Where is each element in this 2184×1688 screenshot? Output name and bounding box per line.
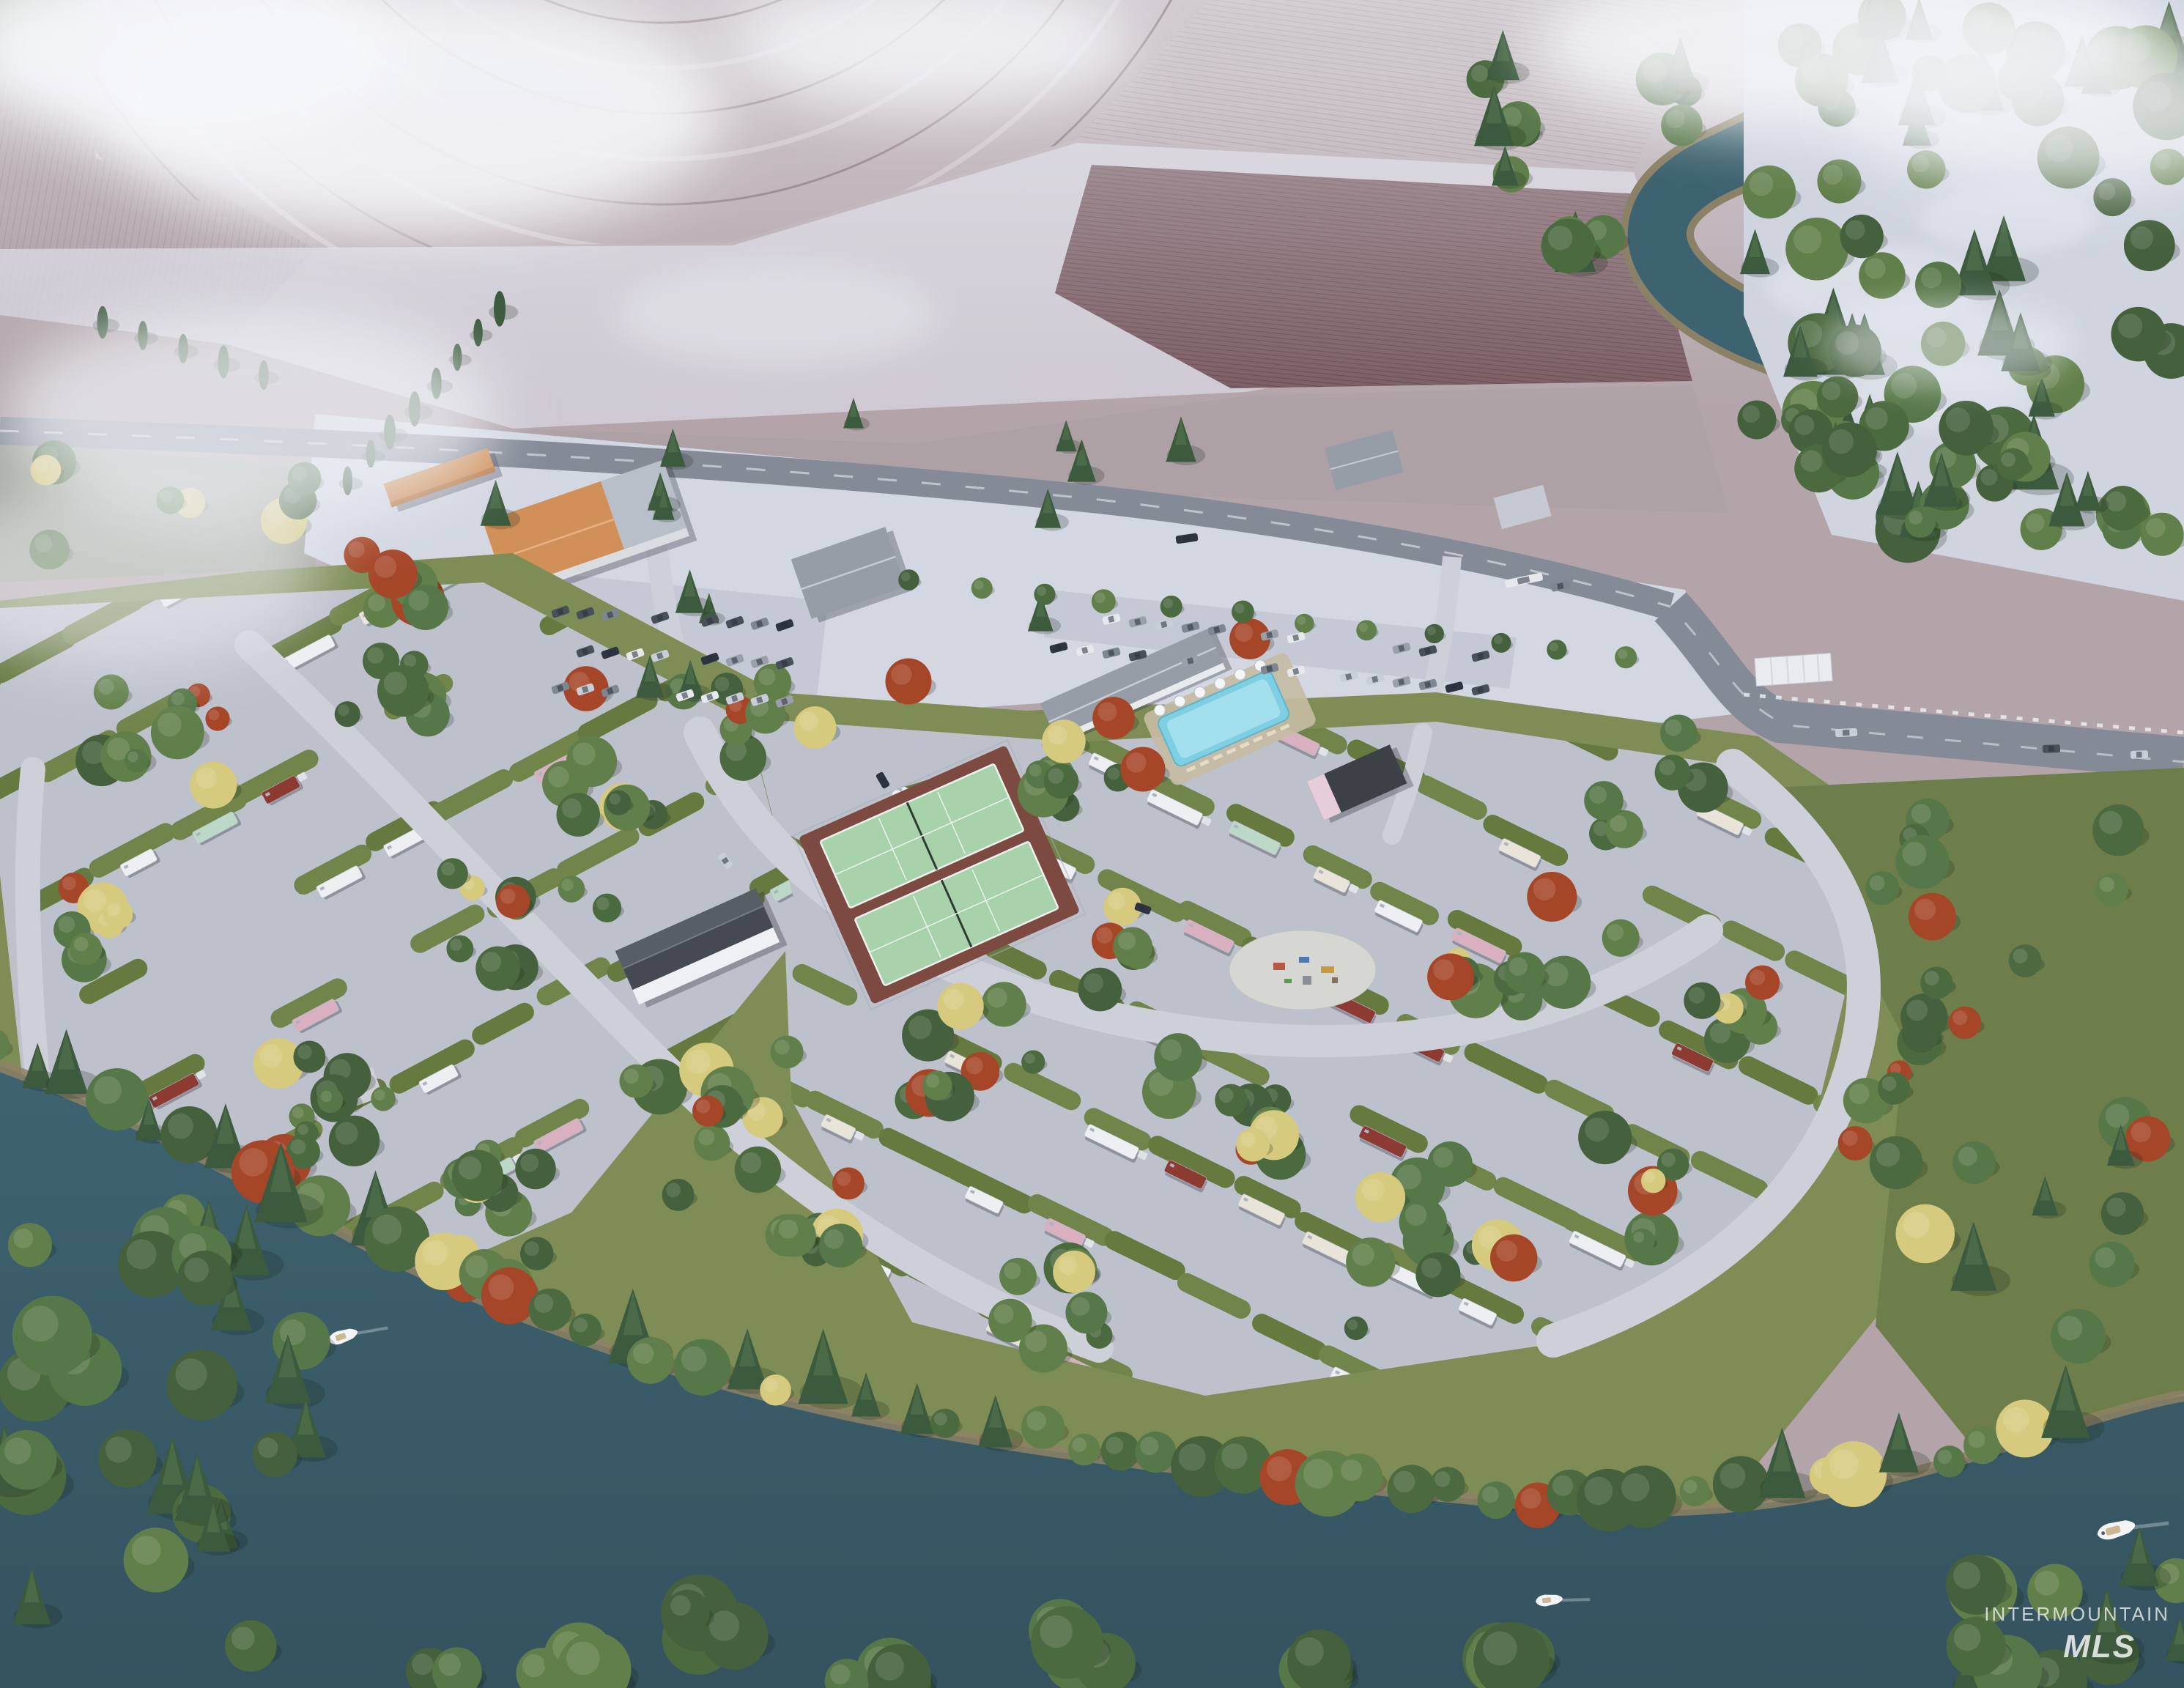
tree-highlight [799,711,818,730]
tree-highlight [1914,899,1936,920]
tree-highlight [175,1358,207,1390]
tree-highlight [774,1040,789,1054]
tree-highlight [384,672,407,695]
tree-highlight [681,1346,707,1371]
car [1835,728,1858,738]
aerial-rendering: INTERMOUNTAIN MLS [0,0,2184,1688]
tree-highlight [666,1182,681,1197]
tree-highlight [1494,635,1503,644]
tree-highlight [489,1274,514,1300]
tree-highlight [321,1091,333,1103]
tree-highlight [2035,1571,2059,1596]
tree-highlight [1071,1297,1090,1316]
tree-highlight [1906,999,1928,1021]
tree-highlight [2058,1316,2083,1341]
tree-highlight [926,1074,939,1087]
tree-highlight [1295,1637,1324,1666]
car-windshield [1557,582,1564,590]
tree-highlight [1267,1456,1292,1481]
tree-highlight [891,664,911,684]
tree-highlight [1352,1244,1374,1266]
tree-highlight [1865,258,1886,279]
tree-highlight [1585,1117,1609,1141]
tree-highlight [338,705,349,717]
tree-highlight [686,1050,710,1074]
tree-highlight [280,1319,306,1345]
tree-highlight [450,939,462,951]
tree-highlight [1126,752,1146,772]
tree-highlight [1823,165,1843,185]
fog-wisp [615,264,938,366]
tree-highlight [1849,1084,1870,1104]
tree-highlight [1589,786,1607,804]
watermark-mls: MLS [2063,1629,2136,1665]
tree-highlight [609,793,620,804]
tree-highlight [259,1045,282,1067]
tree-highlight [1234,603,1245,613]
tree-highlight [368,594,385,612]
poplar-tree [494,291,506,327]
tree-highlight [1550,643,1558,651]
playground-surface [1229,930,1376,1010]
tree-highlight [1097,702,1117,721]
tree-highlight [1496,1240,1517,1262]
tree-highlight [1084,973,1103,993]
tree-highlight [520,1154,538,1172]
tree-highlight [987,988,1007,1008]
tree-highlight [1607,924,1624,941]
tree-highlight [1794,226,1822,254]
tree-highlight [84,889,107,912]
tree-highlight [374,556,396,578]
tree-highlight [572,743,595,766]
tree-highlight [258,1437,278,1458]
car [2043,744,2060,753]
tree-highlight [1958,1147,1977,1166]
tree-highlight [1946,407,1971,432]
tree-highlight [1361,1179,1384,1202]
car-windshield [1843,730,1850,736]
tree-highlight [1661,1152,1676,1167]
tree-highlight [1865,407,1888,430]
rv-vent [1815,747,1820,752]
tree-highlight [1435,1471,1450,1487]
tree-highlight [107,903,121,917]
tree-highlight [1240,1132,1256,1147]
tree-highlight [1026,1411,1046,1431]
tree-highlight [374,1089,385,1100]
tree-highlight [934,1413,947,1426]
play-structure [1299,957,1309,963]
tree-highlight [13,1229,33,1248]
tree-highlight [132,1536,161,1565]
tree-highlight [1521,1488,1541,1509]
tree-highlight [994,1304,1014,1324]
tree-highlight [1903,1212,1930,1238]
tree-highlight [335,1122,358,1144]
tree-highlight [1952,1010,1967,1025]
tree-highlight [1618,649,1628,659]
tree-highlight [1040,1615,1073,1648]
tree-highlight [1882,1076,1897,1091]
tree-highlight [696,1100,710,1114]
scene-canvas: INTERMOUNTAIN MLS [0,0,2184,1688]
tree-highlight [2095,1248,2115,1268]
tree-highlight [372,1215,401,1244]
poplar-tree [473,319,482,347]
tree-highlight [239,1148,267,1177]
tree-highlight [901,572,911,582]
tree-highlight [1750,970,1765,985]
tree-highlight [1058,1256,1077,1275]
tree-highlight [824,1229,844,1249]
tree-highlight [1621,1473,1649,1501]
tree-highlight [1800,451,1822,473]
tree-highlight [1552,1476,1573,1496]
tree-highlight [522,1654,545,1677]
tree-highlight [1359,623,1369,632]
tree-highlight [1096,928,1112,944]
tree-highlight [1004,1262,1021,1279]
tree-highlight [836,1171,851,1186]
tree-highlight [1427,626,1436,635]
tree-highlight [1953,1562,1980,1589]
tree-highlight [633,1343,654,1364]
play-structure [1273,963,1285,970]
tree-highlight [438,1654,461,1676]
tree-highlight [596,897,610,911]
tree-highlight [1829,1449,1859,1478]
tree-highlight [1118,932,1136,949]
tree-highlight [349,541,365,558]
tree-highlight [1925,971,1939,985]
play-structure [1321,966,1334,973]
tree-highlight [1297,616,1306,625]
tree-highlight [525,1241,539,1256]
tree-highlight [481,952,501,971]
tree-highlight [779,1220,798,1239]
tree-highlight [367,647,384,664]
tree-highlight [1846,220,1865,240]
tree-highlight [876,1652,904,1681]
tree-highlight [500,889,516,904]
tree-highlight [2013,949,2027,963]
tree-highlight [2099,811,2122,834]
tree-highlight [561,879,574,892]
tree-highlight [1665,719,1681,736]
play-structure [1332,977,1338,983]
tree-highlight [196,768,217,789]
tree-highlight [1876,1143,1900,1167]
tree-highlight [830,1665,850,1684]
tree-highlight [764,1378,778,1392]
tree-highlight [1843,1130,1858,1146]
tree-highlight [1106,1437,1123,1454]
tree-highlight [562,799,582,818]
tree-highlight [422,1240,448,1265]
tree-highlight [409,591,429,611]
tree-highlight [698,1129,714,1145]
playground [1229,930,1376,1010]
trailer-roof [1755,653,1832,686]
tree-highlight [1585,1477,1613,1506]
tree-highlight [1347,1319,1358,1330]
tree-highlight [2106,492,2126,512]
tree-highlight [1107,767,1119,780]
tree-highlight [2131,226,2153,249]
tree-highlight [1029,764,1041,777]
tree-highlight [297,1124,308,1135]
tree-highlight [1421,1258,1442,1278]
tree-highlight [1750,172,1774,196]
tree-highlight [1548,226,1572,250]
tree-highlight [1659,759,1676,775]
tree-highlight [1689,987,1706,1004]
tree-highlight [2118,314,2143,338]
tree-highlight [1980,469,1997,486]
tree-highlight [1140,1437,1158,1455]
tree-highlight [1072,1437,1087,1452]
boat-deck [1542,1597,1552,1603]
tree-highlight [404,654,416,667]
tree-highlight [566,1642,599,1675]
tree-highlight [1393,1471,1415,1493]
tree-highlight [106,1437,132,1463]
tree-highlight [62,876,76,890]
tree-highlight [184,1258,209,1283]
tree-highlight [2106,1198,2125,1217]
tree-highlight [1221,1443,1247,1469]
tree-highlight [1794,415,1814,435]
tree-highlight [1482,1486,1499,1503]
tree-highlight [1937,1450,1952,1465]
tree-highlight [4,1437,32,1465]
tree-highlight [534,1294,553,1313]
tree-highlight [1095,592,1106,603]
car-windshield [2048,746,2054,752]
car-windshield [2136,752,2142,758]
tree-highlight [548,766,569,788]
tree-highlight [58,916,75,933]
tree-highlight [1405,1204,1426,1226]
tree-highlight [1954,1624,1981,1651]
tree-highlight [1179,1444,1206,1471]
tree-highlight [741,1152,762,1174]
tree-highlight [1903,842,1927,866]
tree-highlight [966,1057,983,1075]
tree-highlight [1024,1053,1035,1064]
tree-highlight [2099,877,2114,892]
fog-wisp [1824,300,2073,388]
tree-highlight [2146,518,2166,538]
tree-highlight [1533,878,1556,900]
tree-highlight [1968,1431,1985,1448]
tree-highlight [1037,586,1046,596]
tree-highlight [1234,623,1253,642]
tree-highlight [1911,804,1931,823]
tree-highlight [1303,1459,1333,1488]
tree-highlight [171,692,185,706]
tree-highlight [670,1596,691,1616]
tree-highlight [1048,768,1063,783]
tree-highlight [1742,405,1760,423]
tree-highlight [297,1045,312,1059]
tree-highlight [2106,1103,2130,1128]
tree-highlight [209,710,220,721]
tree-highlight [127,752,138,763]
play-structure [1303,976,1311,985]
tree-highlight [1822,382,1841,401]
tree-highlight [465,1255,488,1278]
tree-highlight [1163,599,1173,609]
tree-highlight [94,1076,122,1104]
tree-highlight [1829,429,1854,454]
tree-highlight [441,862,455,876]
tree-highlight [74,937,89,952]
tree-highlight [22,1306,58,1341]
tree-highlight [2026,514,2045,533]
tree-highlight [943,989,964,1010]
tree-highlight [573,1318,588,1333]
tree-highlight [1433,1147,1454,1168]
tree-highlight [1219,1088,1234,1103]
tree-highlight [1160,1039,1182,1061]
tree-highlight [412,1654,433,1675]
tree-highlight [2001,452,2015,467]
tree-highlight [1684,1480,1698,1494]
tree-highlight [127,1239,157,1269]
tree-highlight [2003,1407,2029,1433]
car [2131,750,2148,759]
tree-highlight [758,668,775,685]
tree-highlight [1108,892,1125,909]
tree-highlight [1720,1463,1745,1489]
tree-highlight [1048,725,1067,745]
tree-highlight [1870,876,1885,891]
watermark-intermountain: INTERMOUNTAIN [1984,1603,2170,1625]
tree-highlight [1633,1232,1644,1243]
car-windshield [1182,535,1190,541]
tree-highlight [1921,267,1941,288]
tree-highlight [459,1156,481,1179]
tree-highlight [168,1114,193,1139]
tree-highlight [98,679,114,695]
tree-highlight [290,1139,306,1155]
tree-highlight [1471,65,1488,82]
tree-highlight [908,1016,932,1040]
tree-highlight [158,713,182,737]
tree-highlight [1483,1632,1517,1666]
tree-highlight [2131,1122,2151,1143]
tree-highlight [1433,959,1454,980]
tree-highlight [1341,1459,1362,1481]
play-structure [1284,979,1292,983]
tree-highlight [292,1107,304,1119]
tree-highlight [623,1069,639,1084]
roadside-trailer-building [1755,653,1832,686]
tree-highlight [232,1626,255,1650]
tree-highlight [1644,1171,1655,1182]
tree-highlight [715,677,730,692]
tree-highlight [1909,511,1922,525]
tree-highlight [1509,958,1528,976]
tree-highlight [974,580,983,590]
